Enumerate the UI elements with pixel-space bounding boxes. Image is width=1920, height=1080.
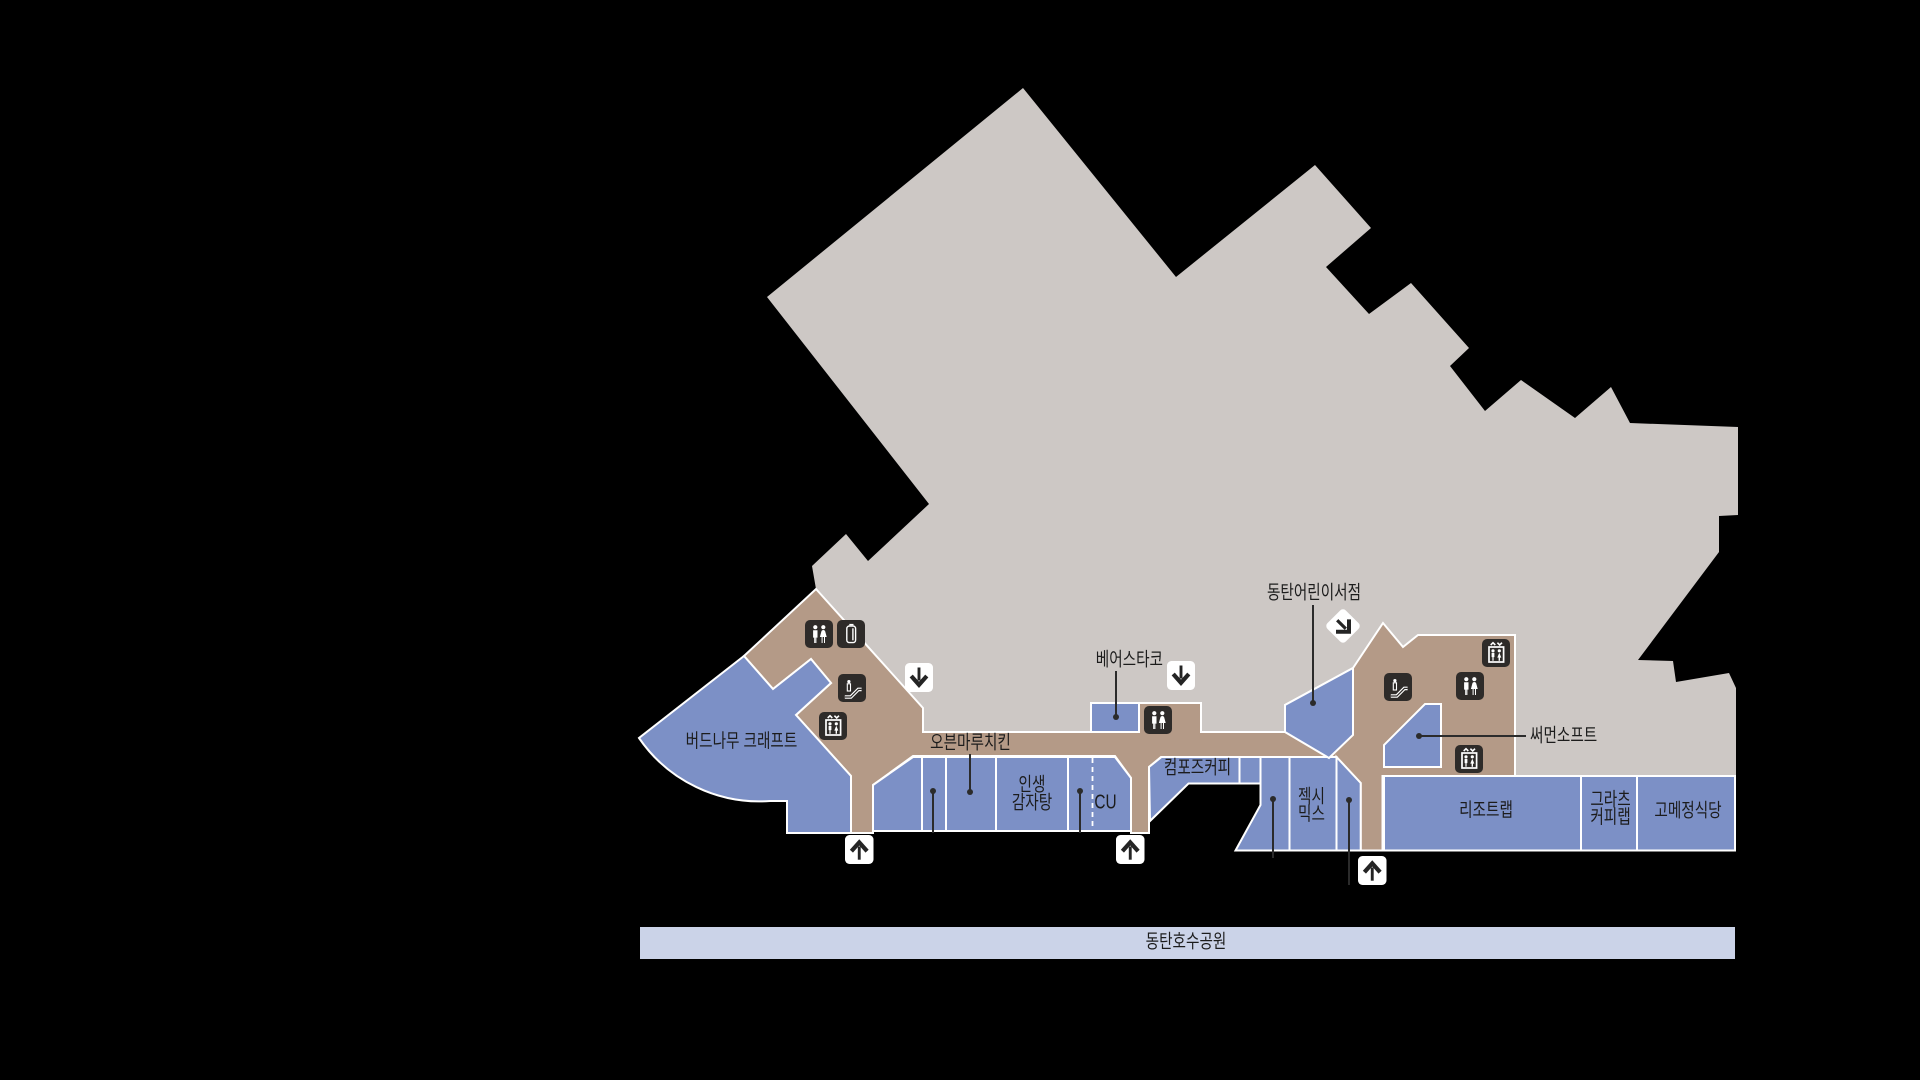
svg-text:감자탕: 감자탕 (1012, 792, 1052, 813)
svg-text:리조트랩: 리조트랩 (1459, 799, 1513, 820)
svg-text:믹스: 믹스 (1298, 803, 1325, 824)
svg-text:컴포즈커피: 컴포즈커피 (1164, 757, 1231, 778)
svg-text:CU: CU (1094, 791, 1116, 813)
svg-text:버드나무 크래프트: 버드나무 크래프트 (686, 730, 798, 751)
svg-text:커피랩: 커피랩 (1590, 806, 1630, 827)
svg-text:베어스타코: 베어스타코 (1096, 649, 1163, 670)
svg-text:동탄호수공원: 동탄호수공원 (1146, 931, 1227, 952)
svg-text:동탄어린이서점: 동탄어린이서점 (1267, 582, 1361, 603)
svg-text:오븐마루치킨: 오븐마루치킨 (930, 732, 1011, 753)
svg-text:고메정식당: 고메정식당 (1654, 800, 1721, 821)
svg-text:써먼소프트: 써먼소프트 (1530, 725, 1597, 746)
